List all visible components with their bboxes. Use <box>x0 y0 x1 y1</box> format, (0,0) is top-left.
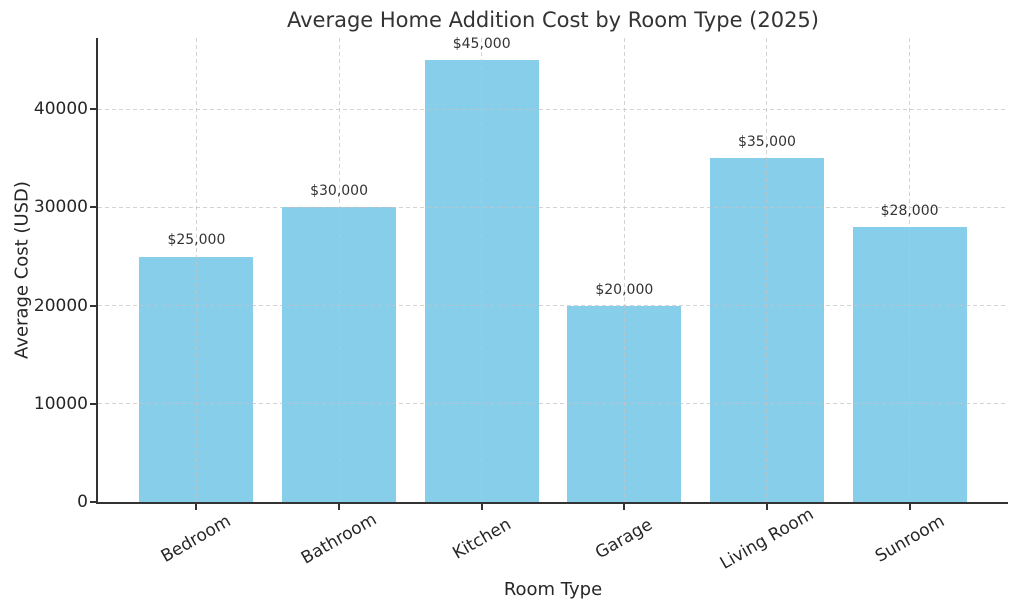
x-tick-mark <box>195 503 197 510</box>
bar-value-label: $45,000 <box>453 36 511 52</box>
y-tick-mark <box>90 108 97 110</box>
x-tick-mark <box>909 503 911 510</box>
x-tick-label-living-room: Living Room <box>717 504 817 574</box>
y-tick-label: 40000 <box>0 99 88 119</box>
x-tick-label-bathroom: Bathroom <box>298 509 380 568</box>
y-tick-mark <box>90 206 97 208</box>
plot-area: $25,000$30,000$45,000$20,000$35,000$28,0… <box>98 38 1008 502</box>
bar-value-label: $20,000 <box>595 282 653 298</box>
bar-value-label: $30,000 <box>310 183 368 199</box>
bar-chart-figure: Average Home Addition Cost by Room Type … <box>0 0 1024 614</box>
y-tick-label: 10000 <box>0 394 88 414</box>
x-tick-mark <box>766 503 768 510</box>
y-tick-mark <box>90 501 97 503</box>
x-tick-label-bedroom: Bedroom <box>158 511 235 567</box>
y-axis-label: Average Cost (USD) <box>12 181 33 359</box>
bar-value-label: $35,000 <box>738 134 796 150</box>
x-tick-label-garage: Garage <box>592 515 656 563</box>
x-tick-mark <box>338 503 340 510</box>
chart-title: Average Home Addition Cost by Room Type … <box>98 8 1008 33</box>
x-tick-mark <box>623 503 625 510</box>
x-axis-spine <box>96 502 1008 504</box>
bar-value-label: $28,000 <box>881 203 939 219</box>
x-tick-mark <box>481 503 483 510</box>
bar-value-label: $25,000 <box>167 232 225 248</box>
y-tick-mark <box>90 305 97 307</box>
y-tick-mark <box>90 403 97 405</box>
x-tick-label-sunroom: Sunroom <box>872 511 948 566</box>
x-tick-label-kitchen: Kitchen <box>449 514 514 563</box>
x-axis-label: Room Type <box>98 579 1008 600</box>
bar-value-labels-layer: $25,000$30,000$45,000$20,000$35,000$28,0… <box>98 38 1008 502</box>
y-tick-label: 0 <box>0 492 88 512</box>
